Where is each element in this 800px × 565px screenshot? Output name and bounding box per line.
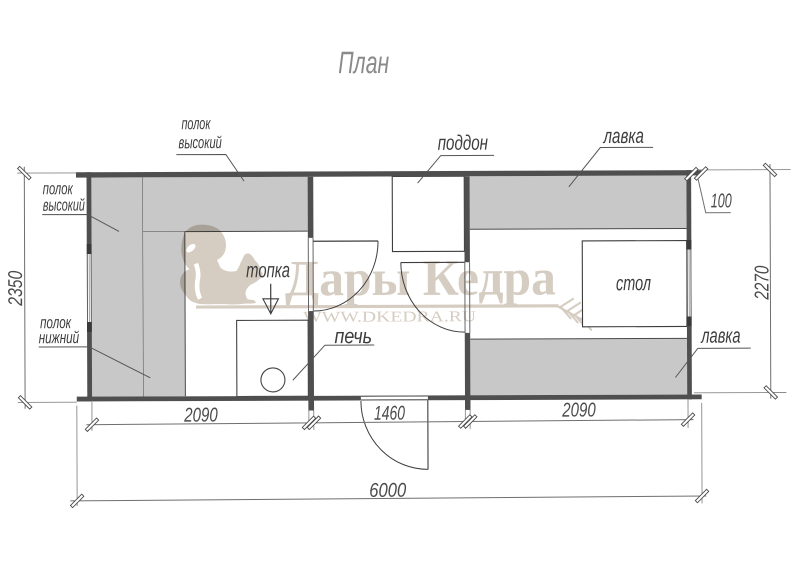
svg-text:2090: 2090	[183, 404, 217, 426]
svg-text:высокий: высокий	[178, 133, 222, 152]
svg-text:1460: 1460	[374, 403, 405, 425]
svg-text:WWW.DKEDRA.RU: WWW.DKEDRA.RU	[303, 309, 476, 326]
svg-text:высокий: высокий	[43, 196, 85, 215]
svg-text:6000: 6000	[369, 480, 406, 502]
svg-text:топка: топка	[246, 259, 290, 282]
svg-text:стол: стол	[616, 272, 651, 295]
svg-text:2270: 2270	[751, 266, 773, 301]
svg-text:Дары Кедра: Дары Кедра	[285, 250, 556, 307]
svg-text:поддон: поддон	[438, 132, 489, 155]
svg-text:нижний: нижний	[39, 328, 80, 347]
svg-text:2350: 2350	[5, 271, 27, 307]
svg-text:2090: 2090	[561, 399, 595, 421]
svg-text:лавка: лавка	[603, 125, 644, 148]
svg-text:лавка: лавка	[700, 325, 740, 348]
svg-text:План: План	[338, 45, 389, 80]
svg-text:100: 100	[711, 190, 732, 212]
svg-text:полок: полок	[181, 114, 211, 133]
